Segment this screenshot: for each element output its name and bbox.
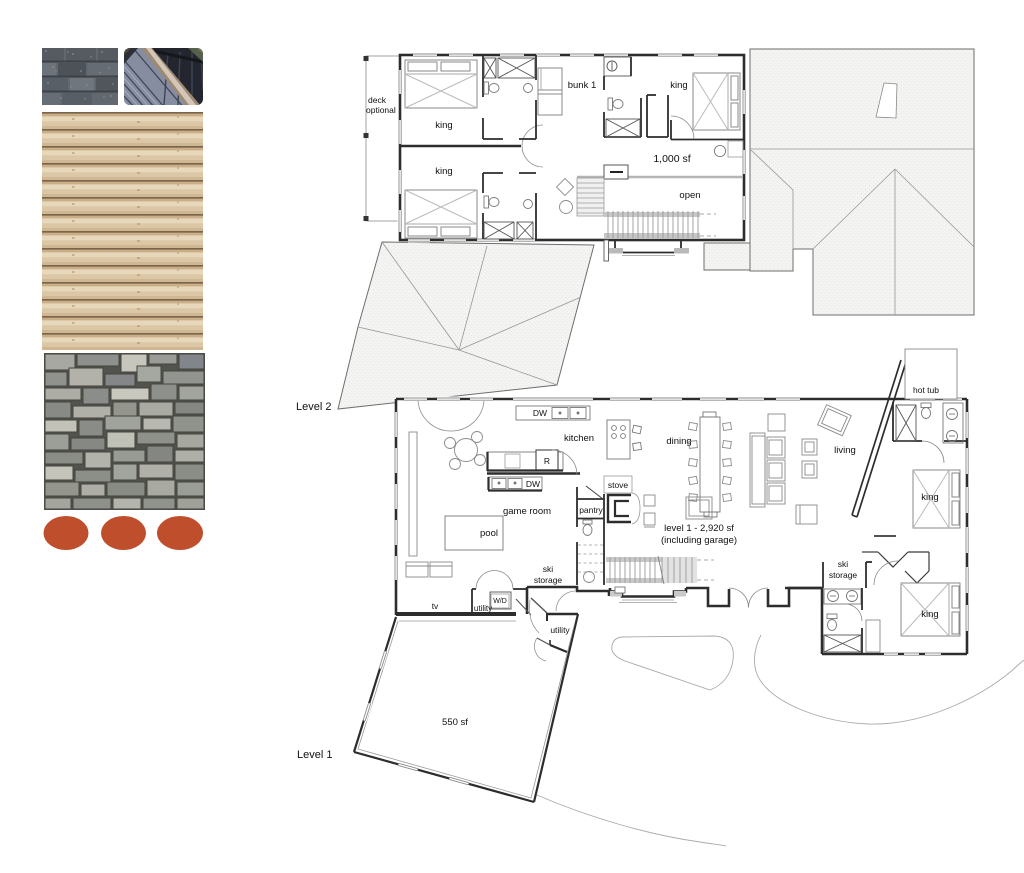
svg-text:hot tub: hot tub — [913, 385, 939, 395]
svg-text:ski: ski — [543, 564, 554, 574]
svg-text:tv: tv — [432, 601, 439, 611]
svg-text:DW: DW — [533, 408, 547, 418]
svg-text:utility: utility — [550, 625, 570, 635]
svg-text:R: R — [544, 456, 550, 466]
svg-text:DW: DW — [526, 479, 540, 489]
svg-text:game room: game room — [503, 506, 551, 517]
svg-text:deck: deck — [368, 95, 387, 105]
svg-text:open: open — [679, 190, 700, 201]
svg-text:1,000 sf: 1,000 sf — [653, 153, 690, 165]
svg-text:pantry: pantry — [579, 505, 603, 515]
svg-text:level 1 - 2,920 sf: level 1 - 2,920 sf — [664, 523, 734, 534]
svg-text:W/D: W/D — [493, 598, 507, 605]
svg-text:pool: pool — [480, 528, 498, 539]
svg-text:king: king — [921, 609, 938, 620]
svg-text:kitchen: kitchen — [564, 433, 594, 444]
svg-text:king: king — [670, 80, 687, 91]
svg-text:bunk 1: bunk 1 — [568, 80, 597, 91]
svg-text:550 sf: 550 sf — [442, 717, 468, 728]
svg-text:Level 1: Level 1 — [297, 749, 332, 761]
svg-text:storage: storage — [534, 575, 563, 585]
svg-text:storage: storage — [829, 570, 858, 580]
svg-text:king: king — [921, 492, 938, 503]
svg-text:utility: utility — [474, 604, 492, 613]
svg-text:optional: optional — [366, 105, 396, 115]
svg-text:ski: ski — [838, 559, 849, 569]
svg-text:stove: stove — [608, 480, 629, 490]
svg-text:king: king — [435, 166, 452, 177]
svg-text:dining: dining — [666, 436, 691, 447]
svg-text:living: living — [834, 445, 856, 456]
svg-text:(including garage): (including garage) — [661, 535, 737, 546]
svg-text:Level 2: Level 2 — [296, 401, 331, 413]
svg-text:king: king — [435, 120, 452, 131]
